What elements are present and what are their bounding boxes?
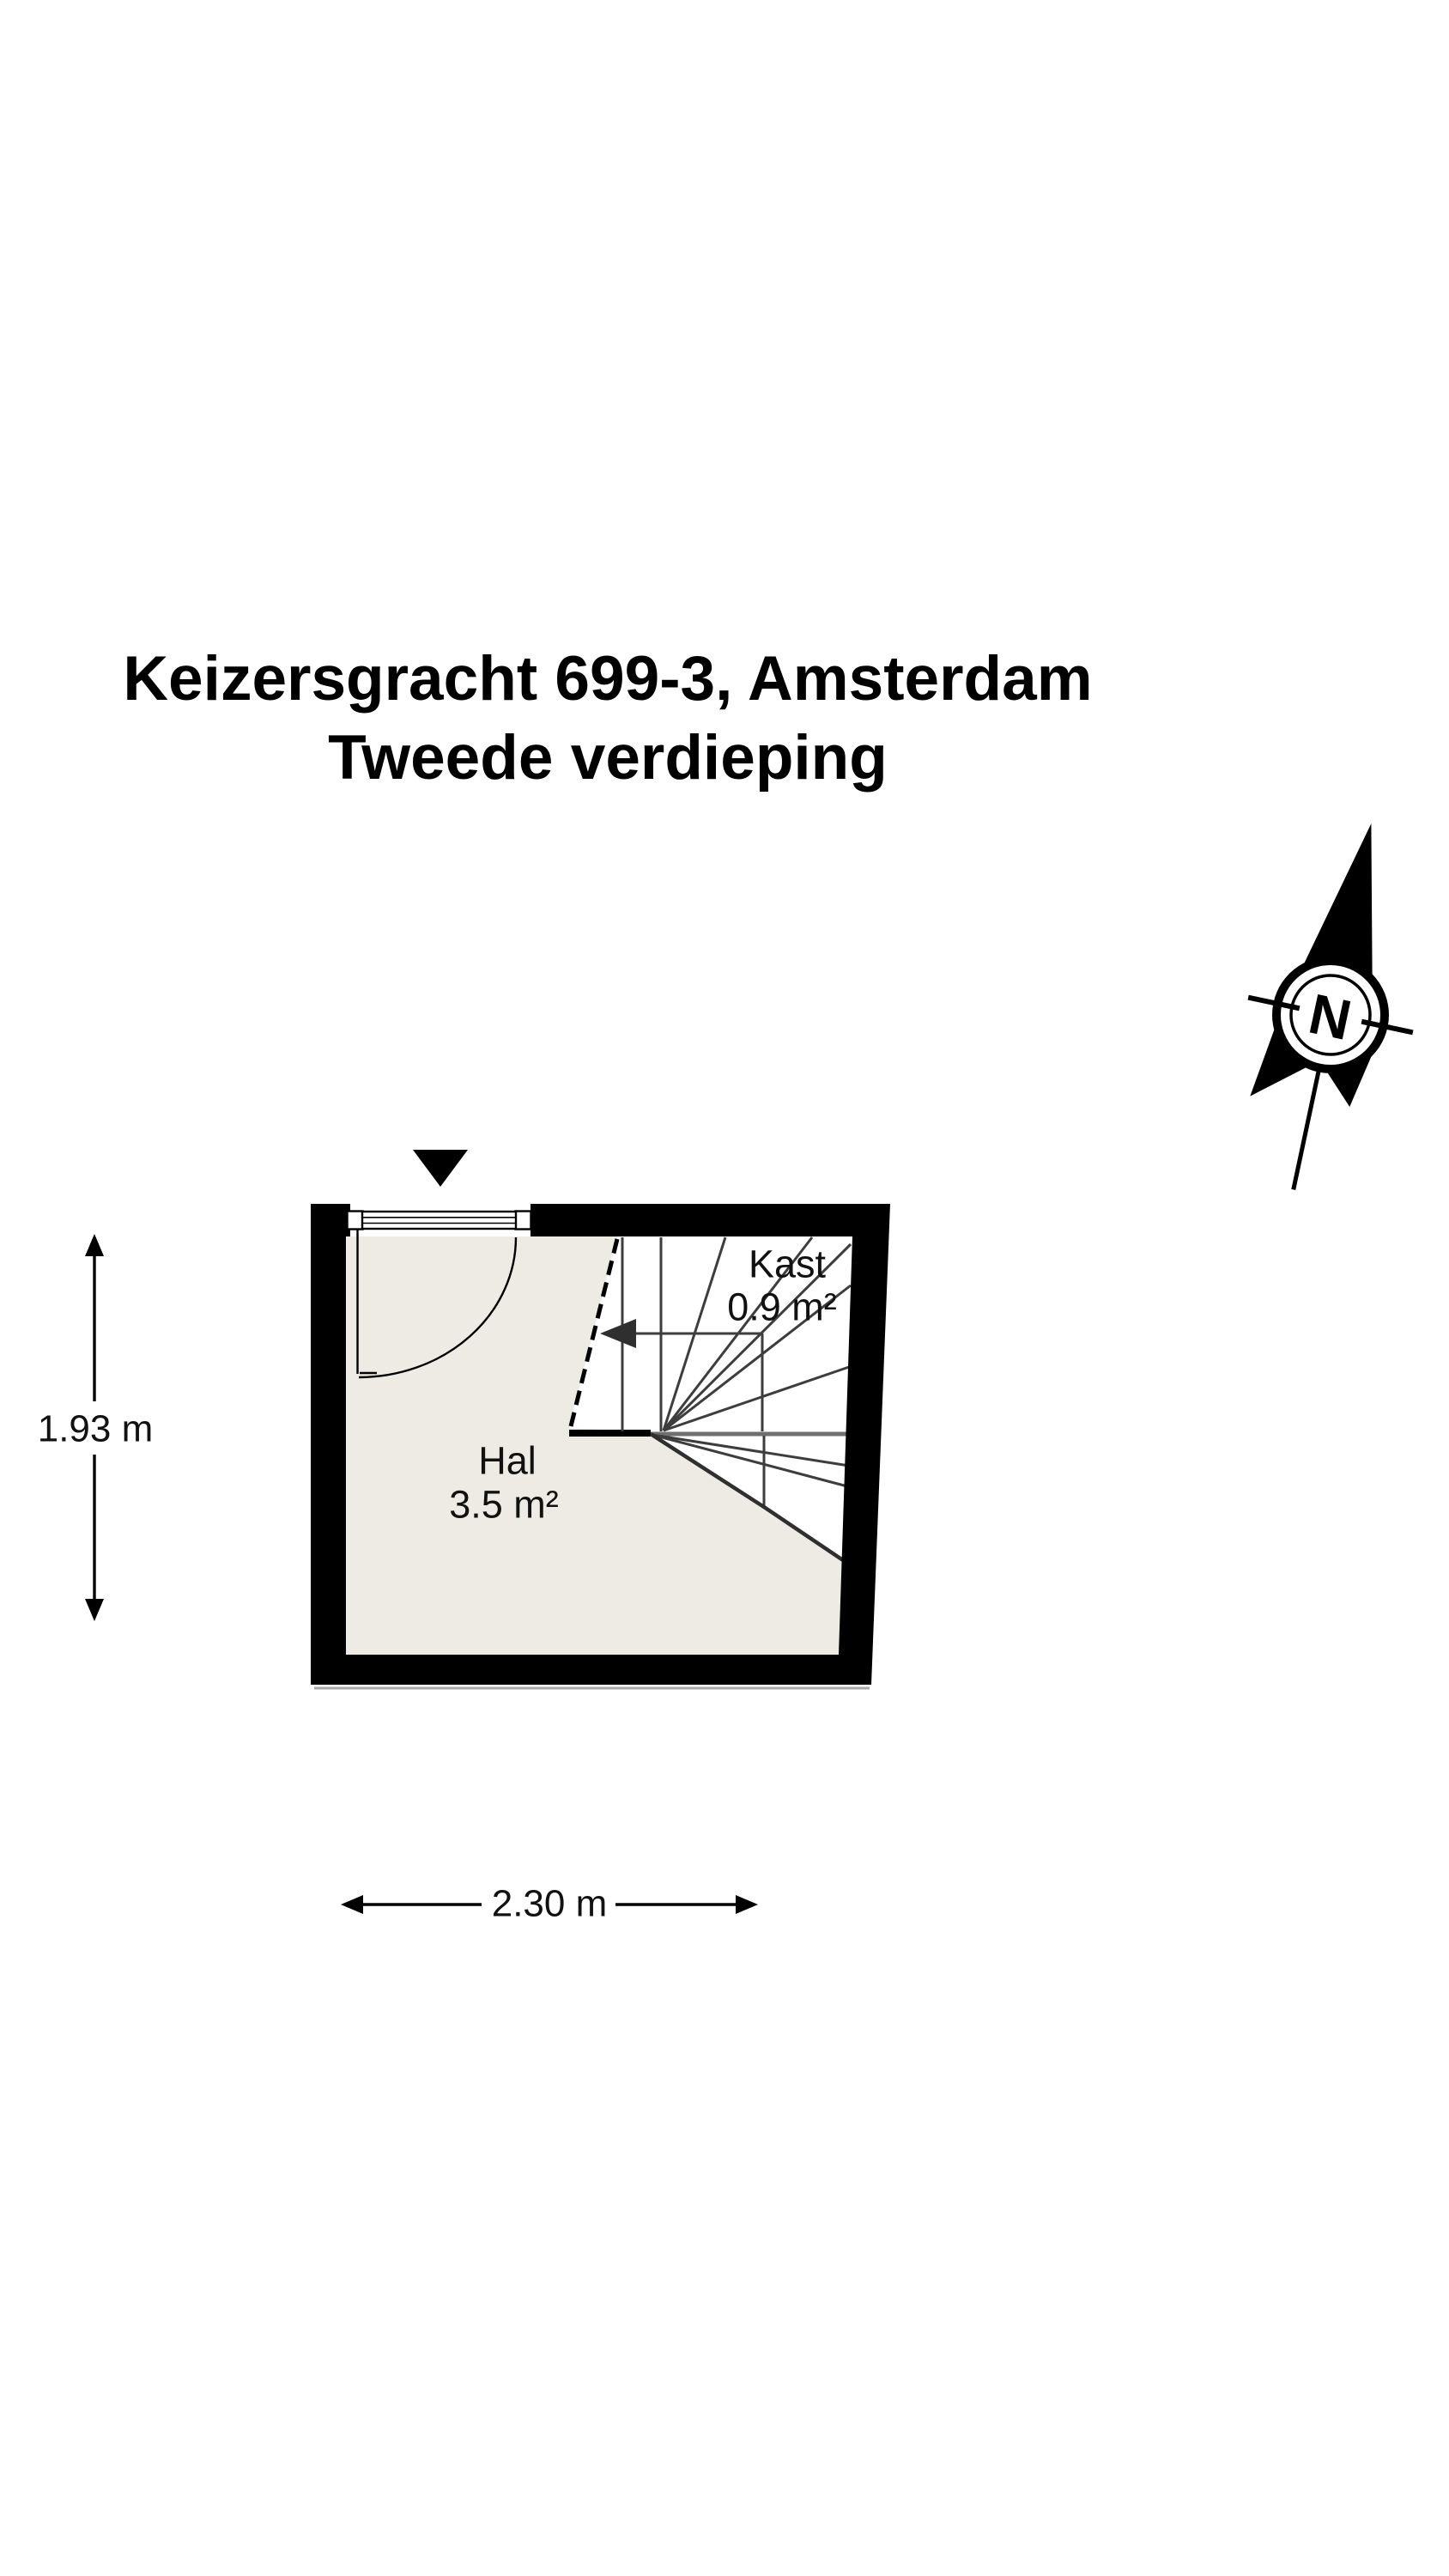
north-compass-icon: N [1211,806,1449,1207]
dimension-vertical-label: 1.93 m [38,1408,154,1450]
arrow-right-icon [736,1895,758,1914]
stair-nosing-stub [569,1430,651,1437]
stair-direction-arrow-icon [600,1319,636,1348]
door-sill [362,1212,516,1229]
arrow-up-icon [85,1234,104,1256]
hal-room-name: Hal [478,1439,537,1483]
door-jamb [516,1212,531,1230]
kast-room-name: Kast [749,1242,827,1286]
arrow-down-icon [85,1599,104,1621]
arrow-left-icon [341,1895,363,1914]
dimension-vertical: 1.93 m [38,1234,154,1621]
hal-room-area: 3.5 m² [449,1483,559,1527]
dimension-horizontal-label: 2.30 m [492,1883,608,1925]
stair-winder-line [664,1367,849,1431]
compass-tail [1294,1066,1320,1190]
kast-room-area: 0.9 m² [727,1285,837,1329]
dimension-horizontal: 2.30 m [341,1883,758,1925]
entrance-arrow-icon [413,1150,468,1187]
floor-plan-drawing: Hal 3.5 m² Kast 0.9 m² 1.93 m 2.30 m [0,0,1449,2576]
door-jamb [348,1212,363,1230]
page-background: Keizersgracht 699-3, Amsterdam Tweede ve… [0,0,1449,2576]
